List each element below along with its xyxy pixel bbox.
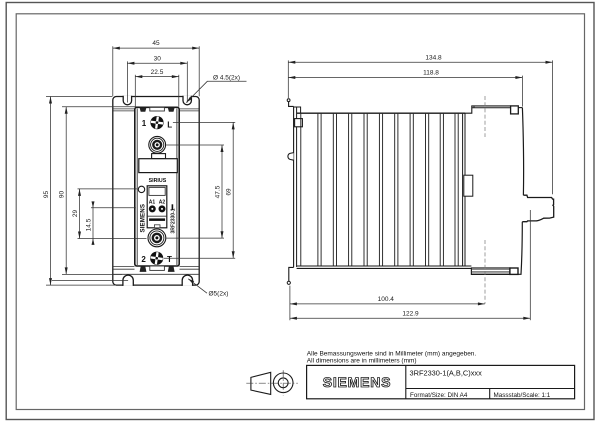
svg-text:A2: A2 xyxy=(159,200,166,206)
svg-text:Massstab/Scale: 1:1: Massstab/Scale: 1:1 xyxy=(494,392,551,399)
svg-text:69: 69 xyxy=(226,188,233,196)
svg-text:14.5: 14.5 xyxy=(85,218,92,231)
svg-text:134.8: 134.8 xyxy=(425,54,442,61)
svg-text:2: 2 xyxy=(141,255,146,264)
svg-text:47.5: 47.5 xyxy=(214,185,221,198)
svg-text:3RF2330-1: 3RF2330-1 xyxy=(170,208,176,233)
svg-text:Format/Size: DIN A4: Format/Size: DIN A4 xyxy=(410,392,468,399)
svg-text:Ø 4.5(2x): Ø 4.5(2x) xyxy=(213,74,240,81)
svg-text:30: 30 xyxy=(154,55,162,62)
svg-text:SIRIUS: SIRIUS xyxy=(149,178,167,184)
svg-text:L: L xyxy=(167,120,172,129)
svg-text:A1: A1 xyxy=(149,200,156,206)
svg-text:22.5: 22.5 xyxy=(151,69,164,76)
svg-text:Alle Bemassungswerte sind in M: Alle Bemassungswerte sind in Millimeter … xyxy=(307,351,477,358)
svg-text:T: T xyxy=(167,255,172,264)
svg-text:100.4: 100.4 xyxy=(378,296,395,303)
svg-text:3RF2330-1(A,B,C)xxx: 3RF2330-1(A,B,C)xxx xyxy=(410,369,483,378)
svg-text:1: 1 xyxy=(142,119,147,128)
svg-text:SIEMENS: SIEMENS xyxy=(323,374,392,390)
svg-text:118.8: 118.8 xyxy=(423,70,439,77)
svg-text:All dimensions are in millimet: All dimensions are in millimeters (mm) xyxy=(307,358,417,365)
svg-text:122.9: 122.9 xyxy=(402,310,419,317)
svg-text:SIEMENS: SIEMENS xyxy=(140,204,147,233)
svg-text:29: 29 xyxy=(72,210,79,218)
svg-text:95: 95 xyxy=(43,191,50,199)
svg-text:90: 90 xyxy=(59,191,66,199)
svg-text:45: 45 xyxy=(152,40,160,47)
svg-text:Ø5(2x): Ø5(2x) xyxy=(209,291,229,298)
